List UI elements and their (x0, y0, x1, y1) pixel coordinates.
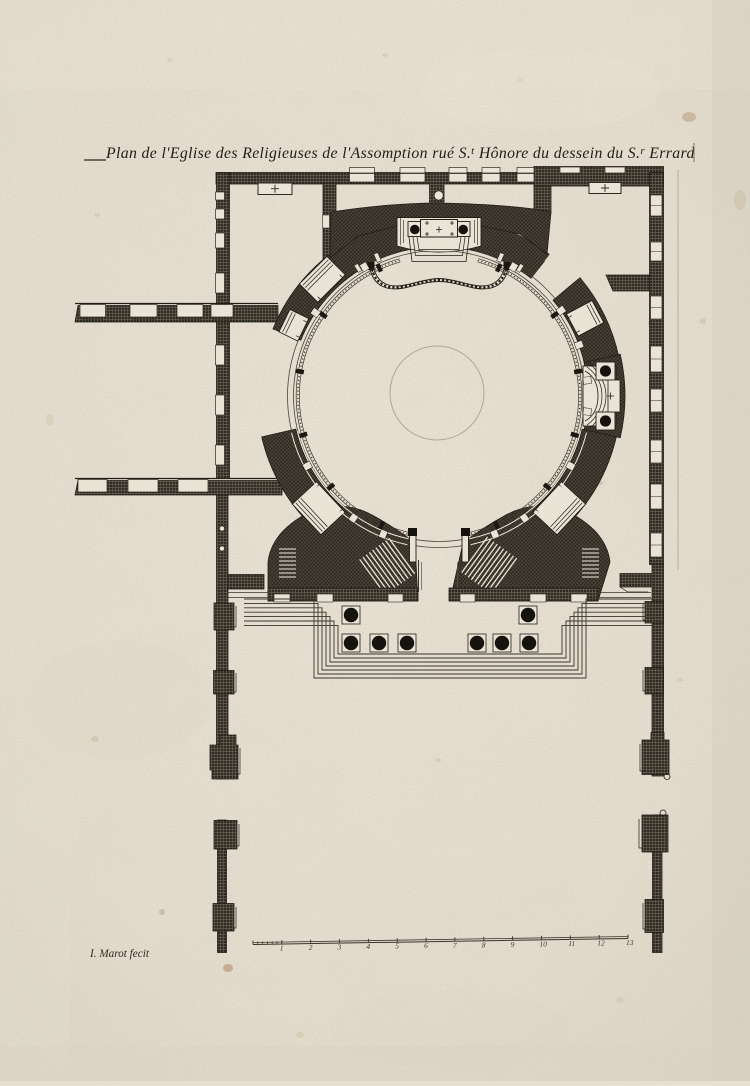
svg-text:11: 11 (568, 939, 575, 948)
svg-text:2: 2 (309, 943, 313, 952)
svg-text:1: 1 (280, 944, 284, 953)
svg-text:9: 9 (511, 940, 515, 949)
svg-text:3: 3 (337, 943, 342, 952)
svg-text:7: 7 (453, 941, 457, 950)
svg-text:6: 6 (424, 941, 428, 950)
svg-text:I. Marot fecit: I. Marot fecit (89, 948, 150, 960)
svg-text:5: 5 (395, 942, 399, 951)
svg-text:8: 8 (482, 940, 486, 949)
svg-text:Plan de l'Eglise des Religieus: Plan de l'Eglise des Religieuses de l'As… (105, 145, 695, 162)
svg-text:10: 10 (540, 939, 548, 948)
svg-text:12: 12 (597, 939, 605, 948)
svg-text:13: 13 (626, 938, 634, 947)
svg-text:4: 4 (366, 942, 370, 951)
